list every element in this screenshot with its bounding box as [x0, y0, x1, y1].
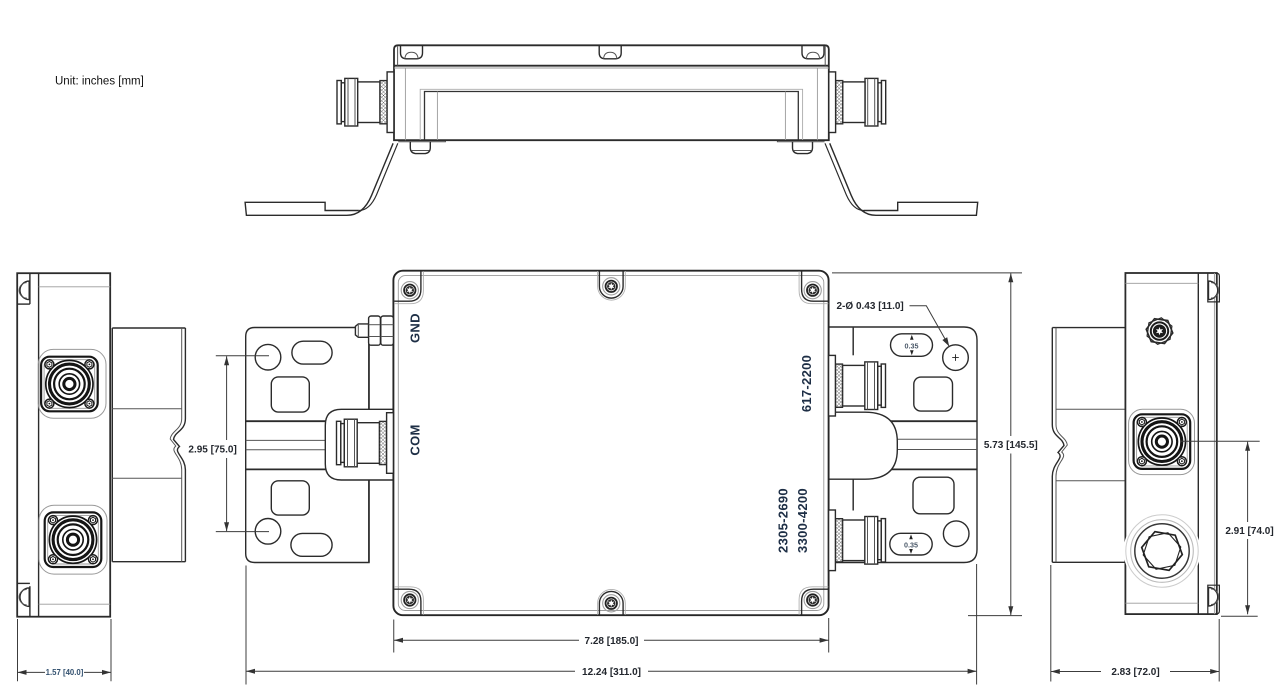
- svg-text:GND: GND: [408, 313, 423, 343]
- svg-text:7.28 [185.0]: 7.28 [185.0]: [585, 636, 639, 647]
- svg-text:1.57 [40.0]: 1.57 [40.0]: [46, 668, 84, 677]
- svg-text:0.35: 0.35: [905, 341, 919, 350]
- svg-text:2.91 [74.0]: 2.91 [74.0]: [1225, 526, 1273, 537]
- svg-text:2305-2690: 2305-2690: [776, 488, 791, 553]
- svg-text:12.24 [311.0]: 12.24 [311.0]: [582, 667, 641, 678]
- svg-text:3300-4200: 3300-4200: [795, 488, 810, 553]
- svg-text:Unit: inches [mm]: Unit: inches [mm]: [55, 76, 144, 88]
- svg-text:2.83 [72.0]: 2.83 [72.0]: [1111, 667, 1159, 678]
- svg-text:2-Ø 0.43 [11.0]: 2-Ø 0.43 [11.0]: [837, 301, 904, 312]
- svg-text:617-2200: 617-2200: [799, 355, 814, 412]
- svg-text:5.73 [145.5]: 5.73 [145.5]: [984, 440, 1038, 451]
- svg-text:2.95 [75.0]: 2.95 [75.0]: [188, 444, 236, 455]
- svg-text:COM: COM: [408, 424, 423, 455]
- svg-text:0.35: 0.35: [904, 540, 918, 549]
